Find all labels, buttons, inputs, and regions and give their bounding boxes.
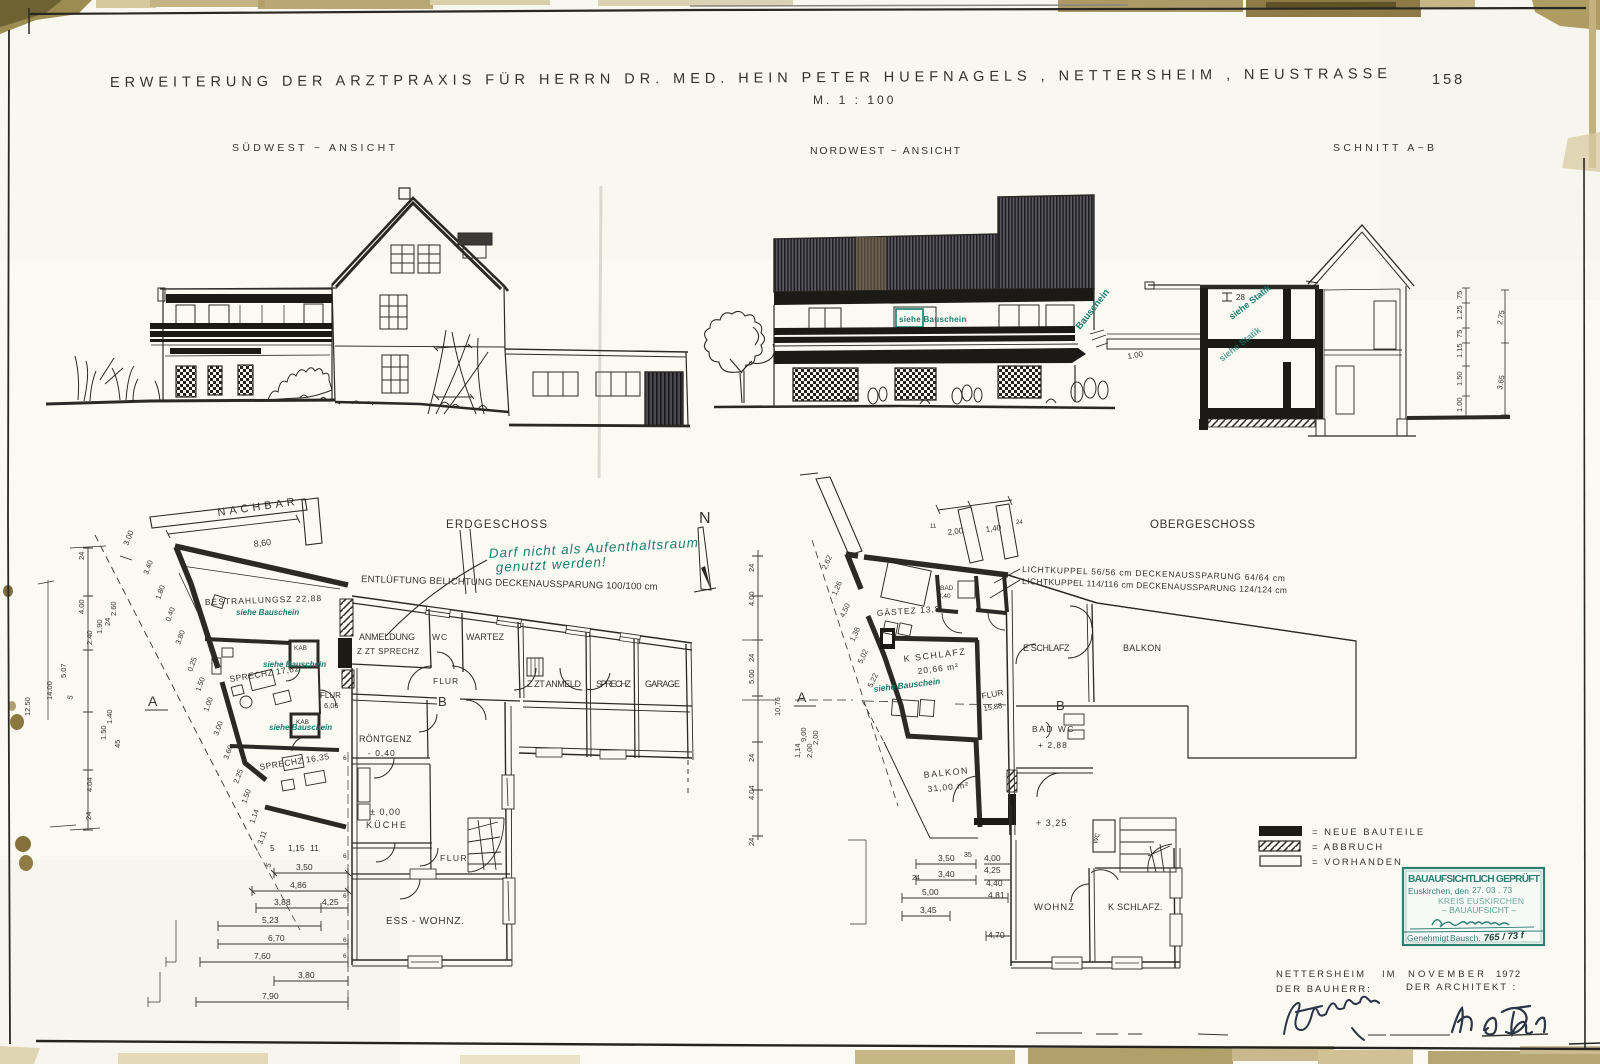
svg-text:6: 6 <box>343 755 347 762</box>
svg-text:5: 5 <box>270 843 275 853</box>
svg-text:4,25: 4,25 <box>322 897 339 907</box>
svg-text:SCHNITT A~B: SCHNITT A~B <box>1333 142 1437 154</box>
svg-text:24: 24 <box>912 875 920 882</box>
svg-text:4.04: 4.04 <box>747 785 756 800</box>
svg-text:GARAGE: GARAGE <box>645 679 681 689</box>
svg-text:1.40: 1.40 <box>105 709 114 724</box>
svg-text:ANMELDUNG: ANMELDUNG <box>359 632 416 642</box>
svg-text:BAUAUFSICHTLICH GEPRÜFT: BAUAUFSICHTLICH GEPRÜFT <box>1408 872 1541 885</box>
svg-text:N: N <box>699 510 712 527</box>
svg-text:ERDGESCHOSS: ERDGESCHOSS <box>446 519 550 531</box>
svg-text:B: B <box>1056 698 1065 713</box>
svg-text:3,50: 3,50 <box>296 862 313 872</box>
svg-text:24: 24 <box>747 754 756 762</box>
svg-text:Z ZT ANMELD: Z ZT ANMELD <box>527 679 582 689</box>
svg-text:NETTERSHEIM: NETTERSHEIM <box>1276 969 1366 980</box>
svg-text:24: 24 <box>747 838 756 846</box>
svg-text:BALKON: BALKON <box>1123 643 1163 653</box>
svg-text:1972: 1972 <box>1496 969 1521 980</box>
svg-text:SÜDWEST ~ ANSICHT: SÜDWEST ~ ANSICHT <box>232 142 398 154</box>
svg-text:4,00: 4,00 <box>984 853 1001 863</box>
svg-text:3,88: 3,88 <box>274 897 291 907</box>
svg-text:siehe Bauschein: siehe Bauschein <box>236 608 299 617</box>
svg-text:FLUR: FLUR <box>320 691 341 700</box>
svg-text:5,23: 5,23 <box>262 915 279 925</box>
svg-text:Z ZT SPRECHZ: Z ZT SPRECHZ <box>357 647 420 656</box>
svg-text:35: 35 <box>964 852 972 859</box>
svg-text:WC: WC <box>432 632 448 642</box>
svg-text:27. 03 . 73: 27. 03 . 73 <box>1472 885 1512 895</box>
svg-text:KAB: KAB <box>296 719 309 726</box>
svg-text:WOHNZ: WOHNZ <box>1034 902 1076 913</box>
svg-text:K SCHLAFZ.: K SCHLAFZ. <box>1108 902 1164 912</box>
svg-text:Genehmigt: Genehmigt <box>1407 933 1449 943</box>
svg-text:3,40: 3,40 <box>938 593 951 600</box>
svg-text:1.15: 1.15 <box>1455 343 1464 358</box>
svg-text:24: 24 <box>77 552 86 560</box>
svg-text:– BAUAUFSICHT –: – BAUAUFSICHT – <box>1442 905 1516 915</box>
svg-text:+ 2,88: + 2,88 <box>1038 740 1068 750</box>
svg-text:A: A <box>148 693 158 709</box>
svg-text:3,40: 3,40 <box>938 869 955 879</box>
svg-text:2,00: 2,00 <box>811 730 820 745</box>
svg-text:1,15: 1,15 <box>288 843 305 853</box>
svg-text:BAD WC: BAD WC <box>1032 724 1075 734</box>
svg-text:DER ARCHITEKT :: DER ARCHITEKT : <box>1406 982 1517 993</box>
svg-text:6,06: 6,06 <box>324 701 339 710</box>
svg-text:KÜCHE: KÜCHE <box>366 820 408 830</box>
svg-text:siehe Bauschein: siehe Bauschein <box>899 315 967 324</box>
svg-text:24: 24 <box>747 654 756 662</box>
svg-text:FLUR: FLUR <box>440 853 468 863</box>
svg-text:4,86: 4,86 <box>290 880 307 890</box>
svg-text:Euskirchen, den: Euskirchen, den <box>1408 886 1469 896</box>
svg-text:4,81: 4,81 <box>988 890 1005 900</box>
svg-text:+ 3,25: + 3,25 <box>1036 818 1067 828</box>
svg-text:NORDWEST ~ ANSICHT: NORDWEST ~ ANSICHT <box>810 145 963 157</box>
svg-text:3,80: 3,80 <box>298 970 315 980</box>
svg-text:ESS - WOHNZ.: ESS - WOHNZ. <box>386 916 466 927</box>
svg-text:7,60: 7,60 <box>254 951 271 961</box>
svg-text:1.00: 1.00 <box>1455 397 1464 412</box>
svg-text:1,14: 1,14 <box>793 743 802 758</box>
svg-text:2.60: 2.60 <box>109 601 118 616</box>
svg-text:7,90: 7,90 <box>262 991 279 1001</box>
svg-text:= NEUE BAUTEILE: = NEUE BAUTEILE <box>1312 827 1425 838</box>
svg-text:6: 6 <box>343 937 347 944</box>
svg-text:Bausch.: Bausch. <box>1450 933 1481 943</box>
svg-text:10,76: 10,76 <box>773 697 782 716</box>
svg-text:12.50: 12.50 <box>23 697 32 716</box>
svg-text:2.40: 2.40 <box>85 630 94 645</box>
svg-text:= VORHANDEN: = VORHANDEN <box>1312 857 1403 868</box>
svg-text:FLUR: FLUR <box>433 676 459 686</box>
svg-text:75: 75 <box>1455 291 1464 299</box>
svg-text:6: 6 <box>343 853 347 860</box>
svg-text:11: 11 <box>310 843 319 853</box>
svg-text:OBERGESCHOSS: OBERGESCHOSS <box>1150 519 1258 531</box>
svg-text:4.00: 4.00 <box>77 599 86 614</box>
svg-text:75: 75 <box>1455 330 1464 338</box>
svg-text:4,25: 4,25 <box>984 865 1001 875</box>
svg-text:24: 24 <box>103 618 112 626</box>
svg-text:5.00: 5.00 <box>747 669 756 684</box>
svg-text:1.50: 1.50 <box>1455 371 1464 386</box>
svg-text:= ABBRUCH: = ABBRUCH <box>1312 842 1384 853</box>
svg-text:3,45: 3,45 <box>920 905 937 915</box>
svg-text:RÖNTGENZ: RÖNTGENZ <box>359 734 413 744</box>
svg-text:24: 24 <box>1016 520 1023 526</box>
svg-text:NOVEMBER: NOVEMBER <box>1408 969 1486 980</box>
svg-text:8,60: 8,60 <box>253 537 272 549</box>
svg-text:24: 24 <box>747 564 756 572</box>
svg-text:B: B <box>438 694 447 709</box>
svg-text:9,00: 9,00 <box>799 727 808 742</box>
svg-text:DER BAUHERR:: DER BAUHERR: <box>1276 984 1372 995</box>
svg-text:6: 6 <box>343 953 347 960</box>
svg-text:WARTEZ: WARTEZ <box>466 632 506 642</box>
svg-text:45: 45 <box>113 740 122 748</box>
svg-text:6: 6 <box>343 893 347 900</box>
svg-text:6,70: 6,70 <box>268 933 285 943</box>
svg-text:BAD: BAD <box>940 585 954 592</box>
svg-text:SPRECHZ: SPRECHZ <box>596 679 632 689</box>
svg-text:158: 158 <box>1432 72 1465 88</box>
svg-text:IM: IM <box>1382 969 1397 980</box>
svg-text:4.00: 4.00 <box>747 591 756 606</box>
svg-text:KAB: KAB <box>294 645 307 652</box>
svg-text:24: 24 <box>84 812 93 820</box>
svg-text:14.00: 14.00 <box>45 681 54 700</box>
svg-text:1.50: 1.50 <box>99 725 108 740</box>
svg-text:1.25: 1.25 <box>1455 305 1464 320</box>
svg-text:4.04: 4.04 <box>85 777 94 792</box>
svg-text:5.07: 5.07 <box>59 663 68 678</box>
svg-text:5,00: 5,00 <box>922 887 939 897</box>
svg-text:A: A <box>797 689 807 705</box>
svg-text:4,70: 4,70 <box>988 930 1005 940</box>
svg-text:4,40: 4,40 <box>986 878 1003 888</box>
svg-text:11: 11 <box>930 524 937 530</box>
svg-text:- 0,40: - 0,40 <box>368 748 396 758</box>
svg-text:± 0,00: ± 0,00 <box>370 807 401 817</box>
svg-text:3,50: 3,50 <box>938 853 955 863</box>
svg-text:M. 1 : 100: M. 1 : 100 <box>813 93 896 107</box>
